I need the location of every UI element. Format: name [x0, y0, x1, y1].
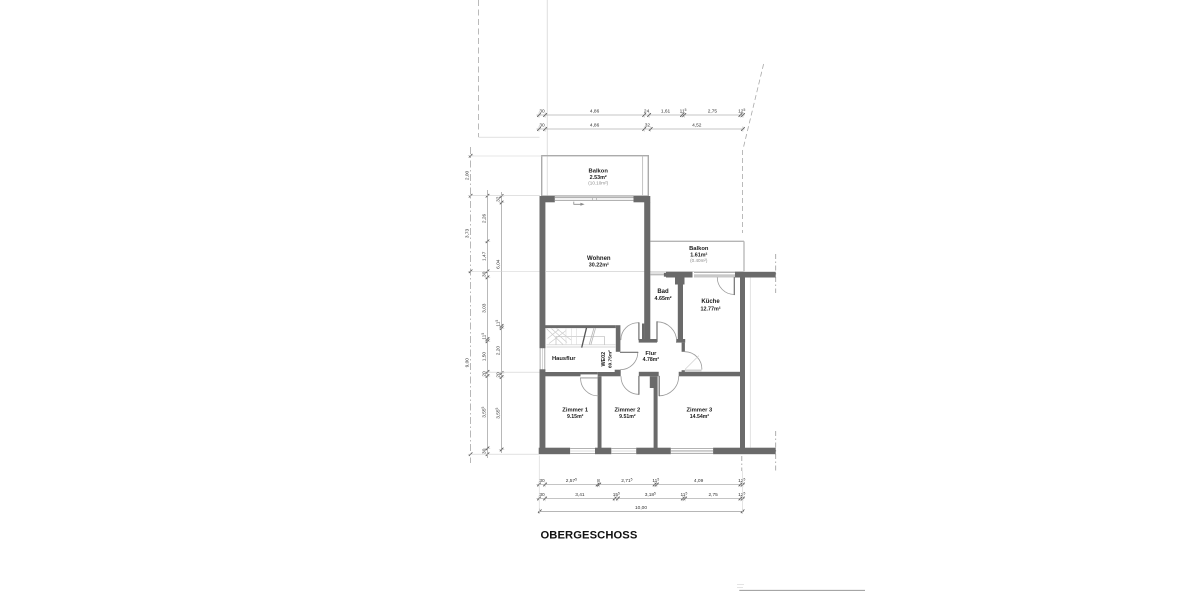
svg-text:Hausflur: Hausflur: [552, 356, 576, 362]
svg-text:Küche: Küche: [701, 299, 720, 305]
svg-text:32: 32: [495, 196, 501, 202]
svg-text:3,03: 3,03: [481, 303, 487, 313]
svg-text:69.75m²: 69.75m²: [607, 350, 613, 368]
svg-text:30: 30: [539, 478, 545, 484]
svg-text:30: 30: [481, 448, 487, 454]
svg-text:(10.10m²): (10.10m²): [588, 181, 608, 186]
svg-text:30: 30: [539, 122, 545, 128]
svg-text:1,50: 1,50: [481, 352, 487, 362]
svg-text:3,41: 3,41: [575, 492, 585, 498]
svg-text:20: 20: [481, 371, 487, 377]
svg-text:Wohnen: Wohnen: [587, 256, 611, 262]
svg-text:30: 30: [539, 108, 545, 114]
svg-text:2,75: 2,75: [709, 492, 719, 498]
svg-text:3,185: 3,185: [645, 492, 656, 498]
svg-text:4.78m²: 4.78m²: [643, 357, 660, 363]
svg-text:4,86: 4,86: [590, 122, 600, 128]
svg-text:2,00: 2,00: [464, 171, 470, 181]
svg-text:OBERGESCHOSS: OBERGESCHOSS: [541, 529, 638, 541]
svg-text:3,555: 3,555: [481, 406, 487, 417]
svg-text:3,555: 3,555: [495, 407, 501, 418]
svg-text:4,52: 4,52: [692, 122, 702, 128]
svg-text:WE02: WE02: [601, 352, 607, 367]
svg-text:9.15m²: 9.15m²: [567, 414, 584, 420]
svg-text:3,73: 3,73: [464, 229, 470, 239]
svg-text:4,86: 4,86: [590, 108, 600, 114]
svg-text:1,61: 1,61: [661, 108, 671, 114]
svg-text:Zimmer 3: Zimmer 3: [687, 407, 714, 413]
svg-text:Balkon: Balkon: [689, 246, 709, 252]
svg-text:Zimmer 1: Zimmer 1: [562, 407, 589, 413]
svg-text:Bad: Bad: [657, 289, 669, 295]
svg-text:4,09: 4,09: [694, 478, 704, 484]
svg-text:20: 20: [495, 372, 501, 378]
svg-text:32: 32: [645, 122, 651, 128]
svg-text:2,715: 2,715: [621, 478, 632, 484]
svg-text:10,00: 10,00: [635, 505, 647, 511]
svg-text:8: 8: [597, 478, 600, 484]
svg-text:30: 30: [481, 271, 487, 277]
svg-text:115: 115: [481, 333, 487, 340]
svg-text:30.22m²: 30.22m²: [589, 263, 609, 269]
svg-text:2,20: 2,20: [495, 346, 501, 356]
svg-text:30: 30: [539, 492, 545, 498]
svg-text:2,75: 2,75: [708, 108, 718, 114]
svg-text:Zimmer 2: Zimmer 2: [615, 407, 641, 413]
svg-text:(0.40m²): (0.40m²): [690, 258, 708, 263]
svg-text:115: 115: [495, 320, 501, 327]
svg-text:12.77m²: 12.77m²: [700, 306, 720, 312]
svg-text:2,26: 2,26: [481, 214, 487, 224]
svg-text:Balkon: Balkon: [589, 169, 609, 175]
svg-text:14.54m²: 14.54m²: [690, 414, 710, 420]
svg-text:2,575: 2,575: [566, 478, 577, 484]
svg-text:24: 24: [644, 108, 650, 114]
svg-text:6,04: 6,04: [495, 259, 501, 269]
svg-text:9,00: 9,00: [464, 358, 470, 368]
svg-text:9.51m²: 9.51m²: [619, 414, 636, 420]
svg-text:1,47: 1,47: [481, 251, 487, 261]
svg-text:4.65m²: 4.65m²: [654, 296, 671, 302]
